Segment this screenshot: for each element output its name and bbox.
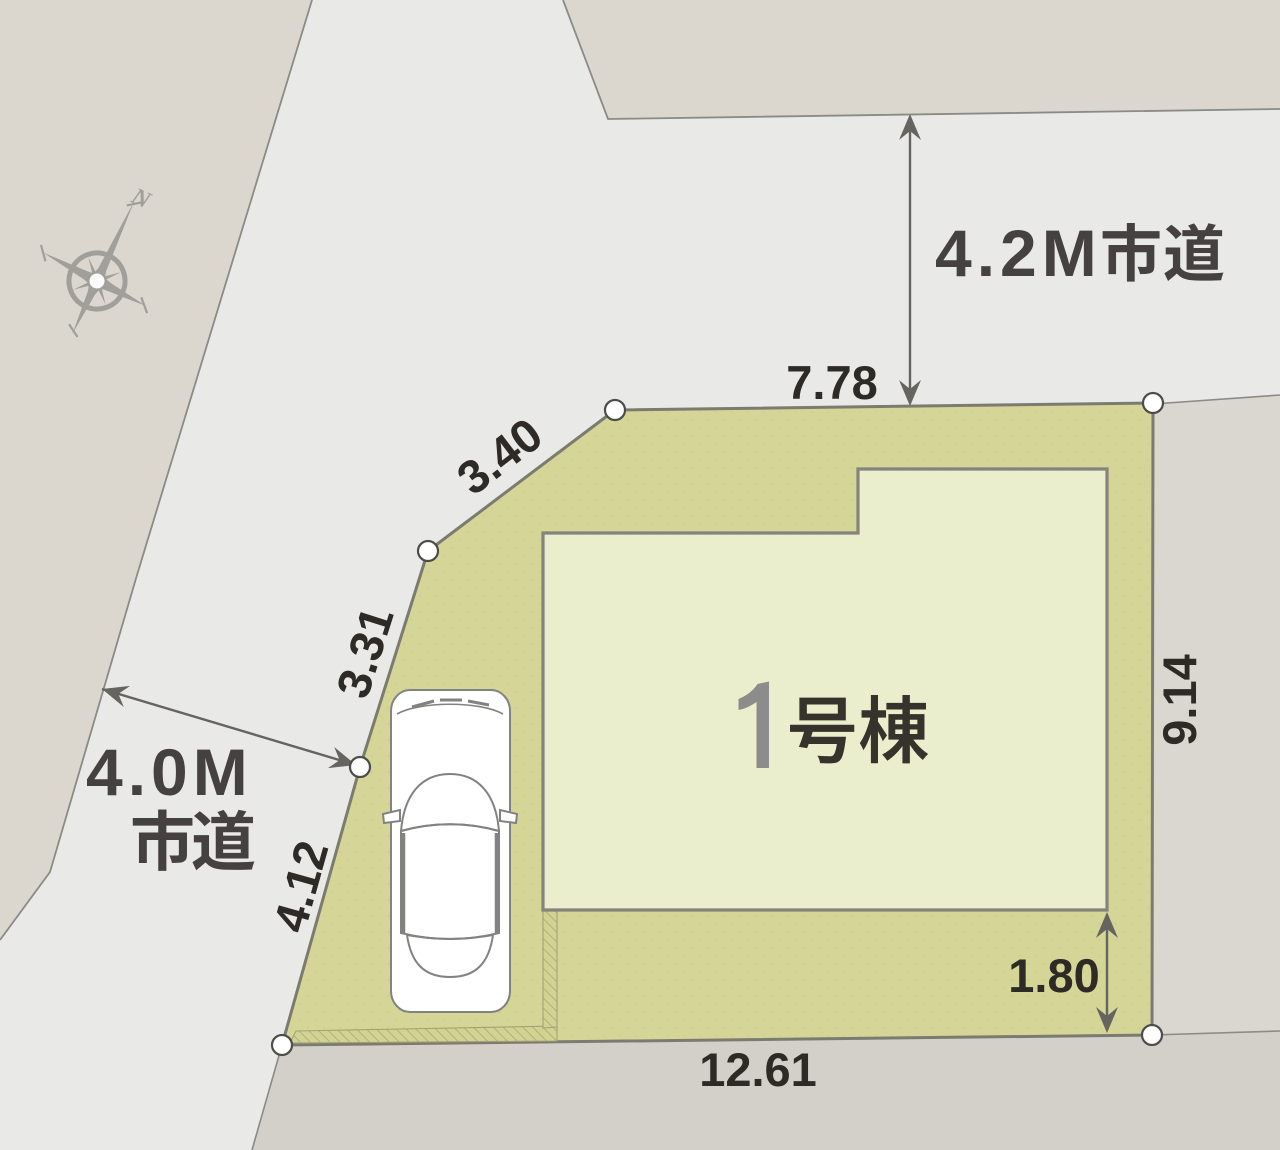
svg-text:7.78: 7.78 bbox=[786, 356, 877, 409]
svg-text:1.80: 1.80 bbox=[1008, 949, 1099, 1002]
svg-text:4.0M: 4.0M bbox=[86, 735, 253, 809]
svg-text:9.14: 9.14 bbox=[1153, 654, 1206, 745]
svg-text:12.61: 12.61 bbox=[699, 1043, 817, 1096]
svg-text:4.2M: 4.2M bbox=[935, 216, 1102, 290]
